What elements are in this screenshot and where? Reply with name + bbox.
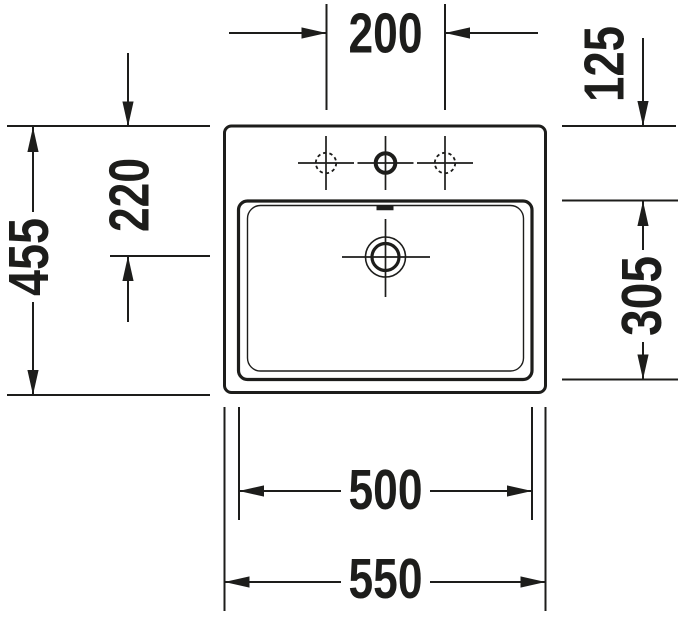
dim-500-label: 500 <box>349 458 423 522</box>
dim-200-arrow-left <box>302 27 327 38</box>
dim-500-arrow-left <box>239 485 264 496</box>
dim-305-arrow-bottom <box>637 355 648 380</box>
drain <box>342 219 430 297</box>
dim-455-label: 455 <box>0 218 61 296</box>
dim-200-arrow-right <box>445 27 470 38</box>
dim-305-arrow-top <box>637 201 648 226</box>
dim-455-arrow-bottom <box>27 370 38 395</box>
dim-125-arrow <box>637 101 648 126</box>
tap-holes <box>298 136 473 190</box>
dim-500-arrow-right <box>507 485 532 496</box>
dim-550-label: 550 <box>349 547 423 611</box>
dim-220-arrow-bottom <box>122 256 133 281</box>
technical-drawing-canvas: 200 125 455 220 305 500 550 <box>0 0 680 617</box>
dim-550-arrow-left <box>225 576 250 587</box>
dim-200-label: 200 <box>349 2 423 66</box>
dim-305-label: 305 <box>610 256 674 336</box>
dim-125-label: 125 <box>573 26 637 102</box>
dim-455-arrow-top <box>27 127 38 152</box>
dimension-lines <box>33 33 643 582</box>
dim-220-arrow-top <box>122 102 133 127</box>
dimension-labels: 200 125 455 220 305 500 550 <box>0 2 674 612</box>
arrowheads <box>27 27 648 587</box>
washbasin-dimension-diagram: 200 125 455 220 305 500 550 <box>0 0 680 617</box>
dim-550-arrow-right <box>521 576 546 587</box>
dim-220-label: 220 <box>98 158 162 232</box>
